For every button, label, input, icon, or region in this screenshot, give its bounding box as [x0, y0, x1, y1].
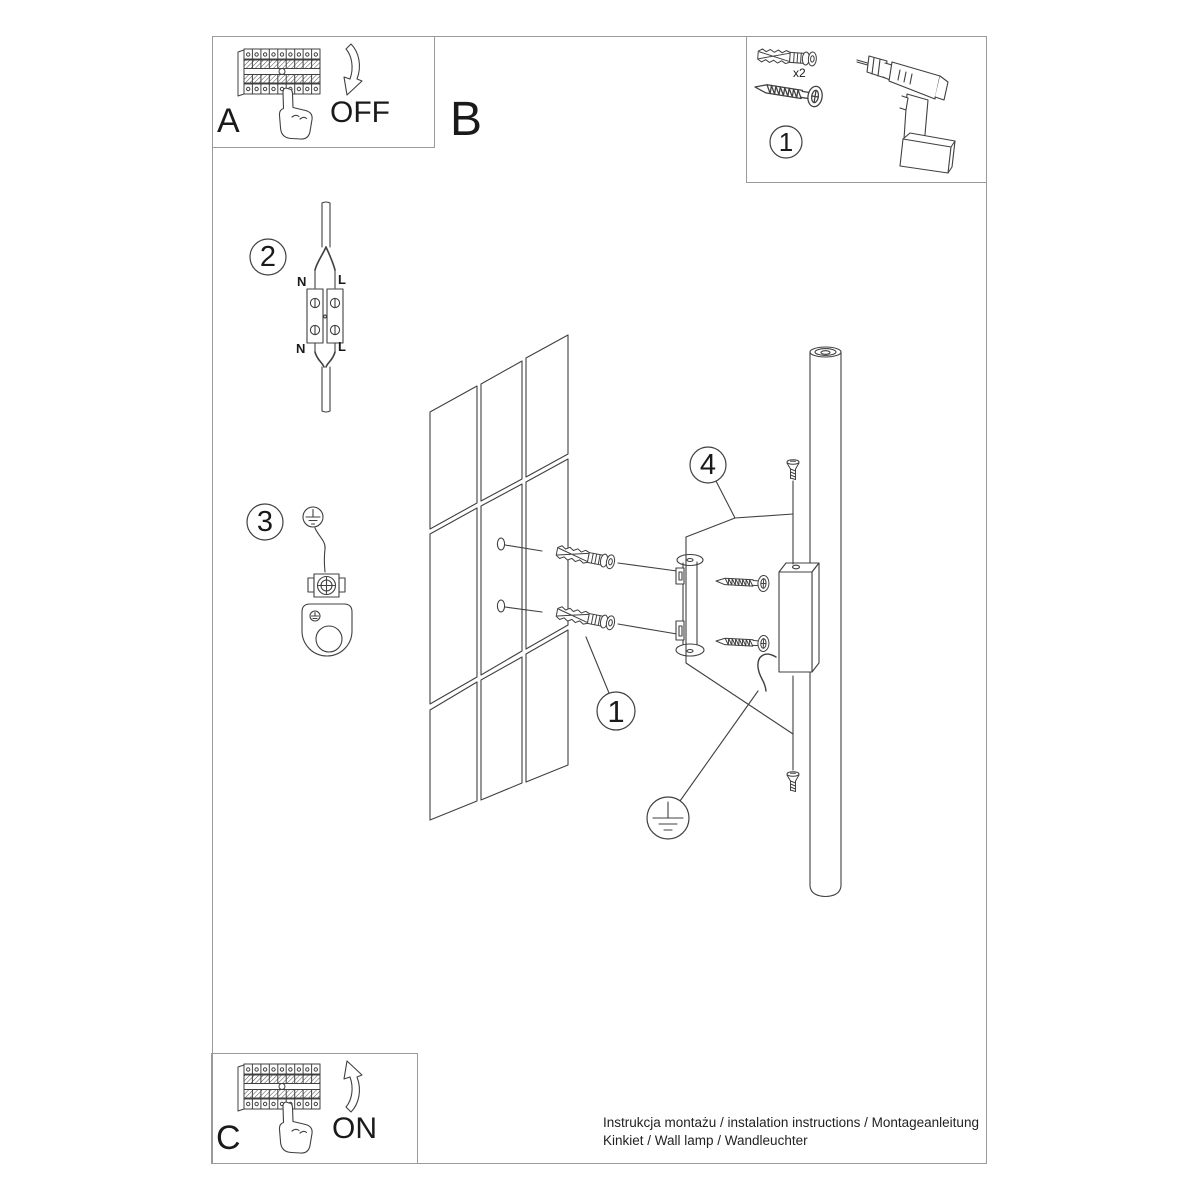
anchor-quantity-label: x2: [793, 67, 806, 79]
hand-press-a-icon: [279, 88, 312, 139]
toolbox-screw-icon: [753, 77, 823, 108]
ground-clamp-icon: [302, 528, 352, 656]
wire-line-top-label: L: [338, 273, 346, 286]
step1-number: 1: [596, 691, 636, 731]
breaker-off-label: OFF: [330, 98, 390, 128]
ground-symbol-main-icon: [647, 797, 689, 839]
diagram-canvas: [0, 0, 1200, 1200]
footer-line-1: Instrukcja montażu / instalation instruc…: [603, 1116, 979, 1130]
wood-screw-1: [716, 573, 770, 592]
wiring-connector-icon: [307, 202, 343, 412]
set-screw-bottom: [787, 772, 799, 792]
toolbox-step-number: 1: [770, 126, 802, 158]
breaker-on-label: ON: [332, 1114, 377, 1144]
wire-neutral-top-label: N: [297, 275, 306, 288]
panel-c-label: C: [216, 1121, 241, 1155]
arrow-off-icon: [344, 44, 362, 95]
step4-number: 4: [688, 445, 728, 485]
ground-symbol-step3-icon: [303, 507, 323, 527]
panel-a-label: A: [217, 104, 240, 138]
lamp-housing: [779, 563, 819, 672]
instruction-sheet: { "panels": { "a_label": "A", "b_label":…: [0, 0, 1200, 1200]
mounting-bracket: [676, 555, 704, 657]
wall-tiles: [430, 335, 568, 820]
footer-line-2: Kinkiet / Wall lamp / Wandleuchter: [603, 1134, 808, 1148]
ground-pointer-line: [680, 691, 758, 801]
step3-number: 3: [245, 502, 285, 542]
wood-screw-2: [716, 633, 770, 652]
drill-icon: [857, 56, 955, 173]
section-b-label: B: [450, 96, 482, 144]
wire-line-bottom-label: L: [338, 340, 346, 353]
hand-press-c-icon: [279, 1102, 312, 1153]
step4-pointer-lines: [686, 481, 793, 734]
wire-neutral-bottom-label: N: [296, 342, 305, 355]
toolbox-anchor-icon: [758, 48, 817, 66]
step2-number: 2: [248, 237, 288, 277]
breaker-panel-c-icon: [238, 1064, 320, 1111]
set-screw-top: [787, 460, 799, 480]
ground-wire: [758, 654, 776, 691]
arrow-on-icon: [344, 1061, 362, 1112]
step1-pointer-line: [586, 637, 609, 693]
breaker-panel-a-icon: [238, 49, 320, 96]
